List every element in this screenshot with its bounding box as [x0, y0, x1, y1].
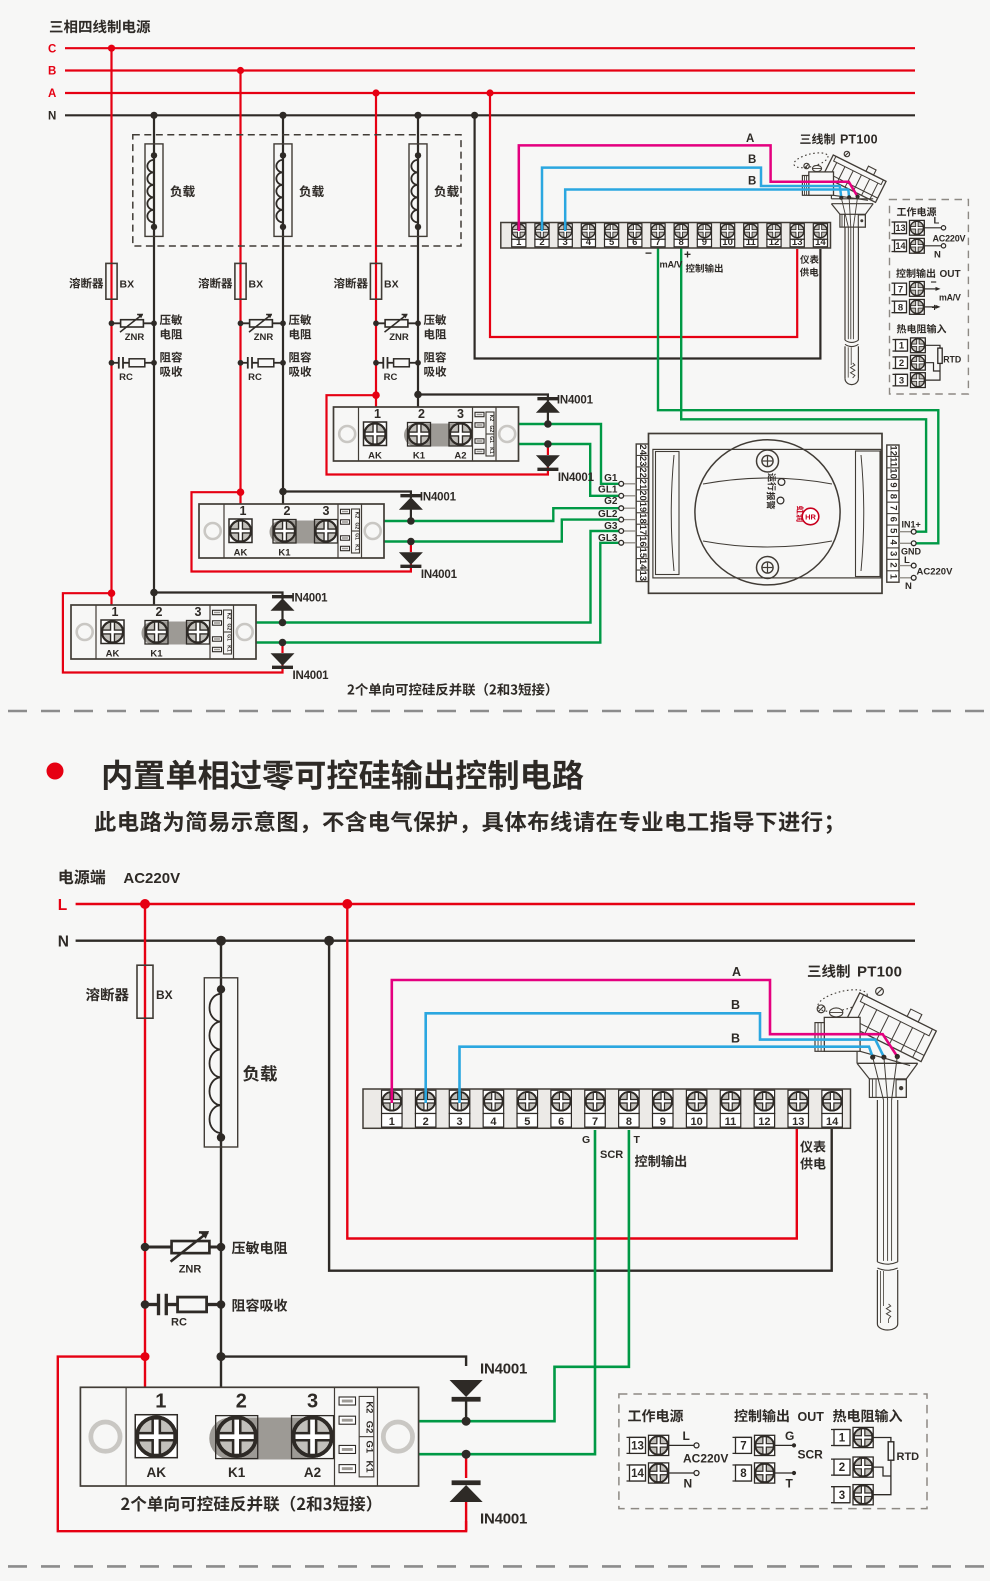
svg-text:K1: K1	[488, 447, 494, 454]
svg-text:17: 17	[637, 525, 648, 536]
svg-text:11: 11	[887, 457, 898, 468]
svg-text:ZNR: ZNR	[389, 332, 409, 343]
svg-text:2: 2	[284, 504, 291, 518]
svg-text:3: 3	[307, 1390, 318, 1412]
svg-text:2: 2	[423, 1116, 429, 1128]
svg-text:21: 21	[637, 479, 648, 490]
svg-text:1: 1	[899, 341, 905, 352]
svg-text:10: 10	[722, 237, 733, 248]
svg-text:K1: K1	[354, 544, 360, 551]
svg-text:AK: AK	[147, 1465, 167, 1480]
svg-text:2: 2	[418, 407, 425, 421]
svg-text:9: 9	[887, 482, 898, 487]
svg-text:13: 13	[792, 237, 803, 248]
svg-text:AC220V: AC220V	[683, 1452, 728, 1466]
svg-text:−: −	[645, 246, 652, 260]
svg-text:K1: K1	[363, 1461, 374, 1474]
svg-text:8: 8	[679, 237, 684, 248]
svg-text:RTD: RTD	[943, 355, 961, 365]
svg-text:1: 1	[374, 407, 381, 421]
svg-text:+: +	[684, 248, 691, 262]
svg-text:IN4001: IN4001	[480, 1511, 527, 1528]
svg-text:1: 1	[839, 1433, 846, 1445]
svg-text:RTD: RTD	[897, 1451, 920, 1463]
svg-text:ZNR: ZNR	[125, 332, 145, 343]
svg-text:3: 3	[457, 407, 464, 421]
svg-text:6: 6	[632, 237, 637, 248]
svg-text:K1: K1	[278, 548, 291, 559]
svg-text:8: 8	[740, 1468, 747, 1480]
svg-text:2: 2	[839, 1462, 845, 1474]
svg-text:7: 7	[655, 237, 660, 248]
svg-text:B: B	[731, 1032, 740, 1046]
svg-text:5: 5	[887, 528, 898, 534]
svg-text:BX: BX	[249, 279, 264, 291]
svg-text:A: A	[732, 965, 741, 979]
svg-text:RC: RC	[171, 1317, 187, 1329]
svg-text:K1: K1	[413, 451, 426, 462]
svg-text:1: 1	[155, 1390, 166, 1412]
svg-text:L: L	[58, 897, 67, 914]
svg-text:PT100: PT100	[840, 133, 878, 147]
svg-text:6: 6	[558, 1116, 564, 1128]
svg-text:AC220V: AC220V	[933, 234, 966, 244]
svg-text:OUT: OUT	[798, 1410, 825, 1424]
svg-text:16: 16	[637, 536, 648, 547]
svg-text:IN4001: IN4001	[292, 593, 329, 605]
svg-text:A2: A2	[304, 1465, 321, 1480]
svg-text:3: 3	[563, 237, 568, 248]
svg-text:4: 4	[490, 1116, 497, 1128]
svg-text:C: C	[48, 43, 56, 55]
svg-text:GL3: GL3	[598, 533, 618, 544]
svg-text:G1: G1	[226, 634, 232, 641]
svg-text:N: N	[58, 934, 69, 951]
svg-text:14: 14	[637, 559, 648, 570]
svg-text:A: A	[746, 133, 754, 145]
svg-text:T: T	[786, 1477, 794, 1491]
svg-text:1: 1	[887, 574, 898, 580]
svg-text:IN4001: IN4001	[557, 395, 594, 407]
svg-text:14: 14	[826, 1116, 839, 1128]
svg-text:12: 12	[758, 1116, 770, 1128]
svg-text:G1: G1	[488, 436, 494, 443]
svg-text:2: 2	[156, 605, 163, 619]
svg-text:24: 24	[637, 444, 648, 455]
svg-text:K1: K1	[228, 1465, 246, 1480]
svg-text:G: G	[785, 1429, 794, 1443]
svg-text:SCR: SCR	[600, 1149, 623, 1161]
svg-text:OUT: OUT	[940, 269, 961, 280]
svg-text:IN1+: IN1+	[902, 520, 921, 530]
svg-text:T: T	[634, 1134, 641, 1146]
svg-text:12: 12	[769, 237, 780, 248]
svg-text:14: 14	[631, 1468, 644, 1480]
svg-text:6: 6	[887, 517, 898, 522]
svg-text:8: 8	[898, 302, 903, 313]
svg-text:BX: BX	[120, 279, 135, 291]
svg-text:HR: HR	[805, 513, 816, 522]
svg-text:RC: RC	[248, 372, 262, 383]
svg-text:15: 15	[637, 548, 648, 559]
svg-text:L: L	[934, 216, 940, 227]
svg-text:8: 8	[887, 494, 898, 499]
svg-text:B: B	[48, 66, 56, 78]
svg-text:GL1: GL1	[598, 485, 618, 496]
svg-text:13: 13	[631, 1441, 644, 1453]
svg-text:9: 9	[702, 237, 707, 248]
svg-text:BX: BX	[384, 279, 399, 291]
svg-text:B: B	[731, 998, 740, 1012]
svg-text:3: 3	[839, 1490, 845, 1502]
svg-text:G2: G2	[226, 623, 232, 630]
svg-text:B: B	[748, 154, 756, 166]
svg-text:B: B	[748, 176, 756, 188]
svg-text:5: 5	[609, 237, 615, 248]
svg-text:G2: G2	[488, 425, 494, 432]
svg-text:7: 7	[740, 1441, 746, 1453]
svg-text:G2: G2	[354, 522, 360, 529]
svg-text:GL2: GL2	[598, 509, 618, 520]
svg-text:G: G	[582, 1134, 590, 1146]
svg-text:K2: K2	[226, 613, 232, 620]
svg-text:K2: K2	[354, 512, 360, 519]
svg-text:AC220V: AC220V	[123, 870, 180, 887]
svg-text:−: −	[931, 277, 937, 289]
svg-text:7: 7	[887, 505, 898, 510]
svg-text:3: 3	[887, 551, 898, 556]
svg-text:9: 9	[660, 1116, 666, 1128]
svg-text:A: A	[48, 88, 56, 100]
svg-text:19: 19	[637, 502, 648, 513]
svg-text:4: 4	[586, 237, 592, 248]
svg-text:3: 3	[195, 605, 202, 619]
svg-text:G3: G3	[604, 521, 618, 532]
svg-text:1: 1	[389, 1116, 395, 1128]
svg-text:N: N	[905, 581, 912, 592]
svg-text:AK: AK	[106, 649, 120, 660]
svg-text:14: 14	[895, 241, 905, 251]
svg-text:L: L	[904, 555, 910, 566]
svg-text:18: 18	[637, 513, 648, 524]
svg-text:K2: K2	[488, 415, 494, 422]
svg-text:23: 23	[637, 456, 648, 467]
svg-text:2: 2	[236, 1390, 247, 1412]
svg-text:7: 7	[898, 284, 903, 295]
svg-text:AK: AK	[234, 548, 248, 559]
svg-text:8: 8	[626, 1116, 632, 1128]
svg-text:3: 3	[899, 376, 904, 387]
svg-text:10: 10	[691, 1116, 703, 1128]
svg-text:13: 13	[792, 1116, 804, 1128]
svg-text:N: N	[684, 1477, 693, 1491]
svg-text:10: 10	[887, 468, 898, 479]
svg-text:L: L	[683, 1429, 690, 1443]
svg-text:11: 11	[725, 1116, 737, 1128]
svg-text:2: 2	[887, 562, 898, 567]
svg-text:SCR: SCR	[798, 1448, 824, 1462]
svg-text:G1: G1	[363, 1441, 374, 1454]
svg-text:11: 11	[746, 237, 757, 248]
svg-text:2: 2	[539, 237, 544, 248]
svg-text:K1: K1	[150, 649, 163, 660]
svg-text:K2: K2	[363, 1401, 374, 1413]
svg-text:G2: G2	[604, 496, 618, 507]
svg-text:13: 13	[637, 570, 648, 581]
svg-text:4: 4	[887, 540, 898, 546]
svg-text:G1: G1	[604, 473, 618, 484]
svg-text:3: 3	[456, 1116, 462, 1128]
svg-text:7: 7	[592, 1116, 598, 1128]
svg-text:AC220V: AC220V	[917, 567, 954, 578]
svg-text:14: 14	[815, 237, 826, 248]
svg-text:mA/V: mA/V	[660, 259, 684, 269]
svg-text:RC: RC	[384, 372, 398, 383]
svg-text:20: 20	[637, 490, 648, 501]
svg-text:13: 13	[895, 223, 905, 233]
svg-text:1: 1	[516, 237, 522, 248]
svg-text:IN4001: IN4001	[293, 670, 330, 682]
svg-text:G1: G1	[354, 533, 360, 540]
svg-text:ZNR: ZNR	[179, 1264, 202, 1276]
svg-text:RC: RC	[119, 372, 133, 383]
svg-text:5: 5	[524, 1116, 530, 1128]
svg-text:IN4001: IN4001	[480, 1361, 527, 1378]
svg-text:1: 1	[112, 605, 119, 619]
svg-text:K1: K1	[226, 645, 232, 652]
svg-text:+: +	[932, 302, 938, 314]
svg-text:A2: A2	[454, 451, 466, 462]
svg-text:IN4001: IN4001	[558, 472, 595, 484]
svg-text:2: 2	[899, 358, 904, 369]
svg-text:G2: G2	[363, 1421, 374, 1434]
svg-text:IN4001: IN4001	[420, 492, 457, 504]
svg-text:N: N	[48, 111, 56, 123]
svg-text:N: N	[934, 250, 941, 261]
svg-text:AK: AK	[368, 451, 382, 462]
svg-text:mA/V: mA/V	[939, 292, 961, 302]
svg-text:22: 22	[637, 467, 648, 478]
svg-text:1: 1	[240, 504, 247, 518]
svg-text:BX: BX	[156, 988, 173, 1002]
svg-text:IN4001: IN4001	[421, 569, 458, 581]
svg-text:3: 3	[323, 504, 330, 518]
svg-text:ZNR: ZNR	[254, 332, 274, 343]
svg-text:12: 12	[887, 445, 898, 456]
svg-text:PT100: PT100	[857, 964, 902, 981]
